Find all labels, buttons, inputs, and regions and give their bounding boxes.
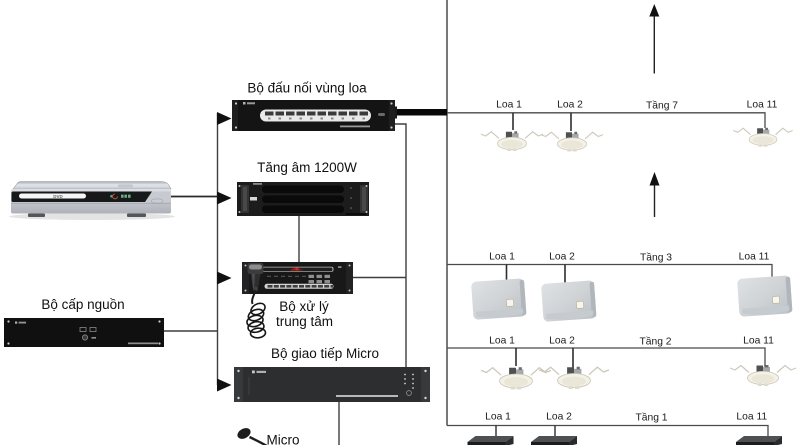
svg-text:Bộ giao tiếp Micro: Bộ giao tiếp Micro [271,346,379,361]
svg-text:DVD: DVD [53,194,63,199]
svg-text:Loa 1: Loa 1 [496,100,522,111]
svg-text:Loa 2: Loa 2 [549,336,575,347]
svg-text:Tăng âm 1200W: Tăng âm 1200W [257,160,357,175]
svg-text:Tầng 2: Tầng 2 [639,336,671,348]
svg-text:Loa 11: Loa 11 [743,336,774,347]
svg-text:Loa 2: Loa 2 [549,252,575,263]
svg-text:Loa 1: Loa 1 [485,412,511,423]
svg-text:Tầng 7: Tầng 7 [646,100,678,112]
svg-text:Loa 11: Loa 11 [739,252,770,263]
svg-text:Loa 1: Loa 1 [489,336,515,347]
svg-text:Tầng 3: Tầng 3 [640,252,672,264]
svg-text:Loa 11: Loa 11 [747,100,778,111]
svg-text:Bộ xử lý: Bộ xử lý [279,299,329,314]
svg-text:Loa 2: Loa 2 [557,100,583,111]
svg-text:Loa 1: Loa 1 [489,252,515,263]
svg-text:Micro: Micro [267,433,300,445]
svg-text:Bộ cấp nguồn: Bộ cấp nguồn [41,297,124,312]
svg-text:Tầng 1: Tầng 1 [635,412,667,424]
svg-text:trung tâm: trung tâm [276,314,333,329]
svg-text:Bộ đấu nối vùng loa: Bộ đấu nối vùng loa [247,81,367,96]
svg-text:Loa 11: Loa 11 [736,412,767,423]
svg-text:Loa 2: Loa 2 [546,412,572,423]
